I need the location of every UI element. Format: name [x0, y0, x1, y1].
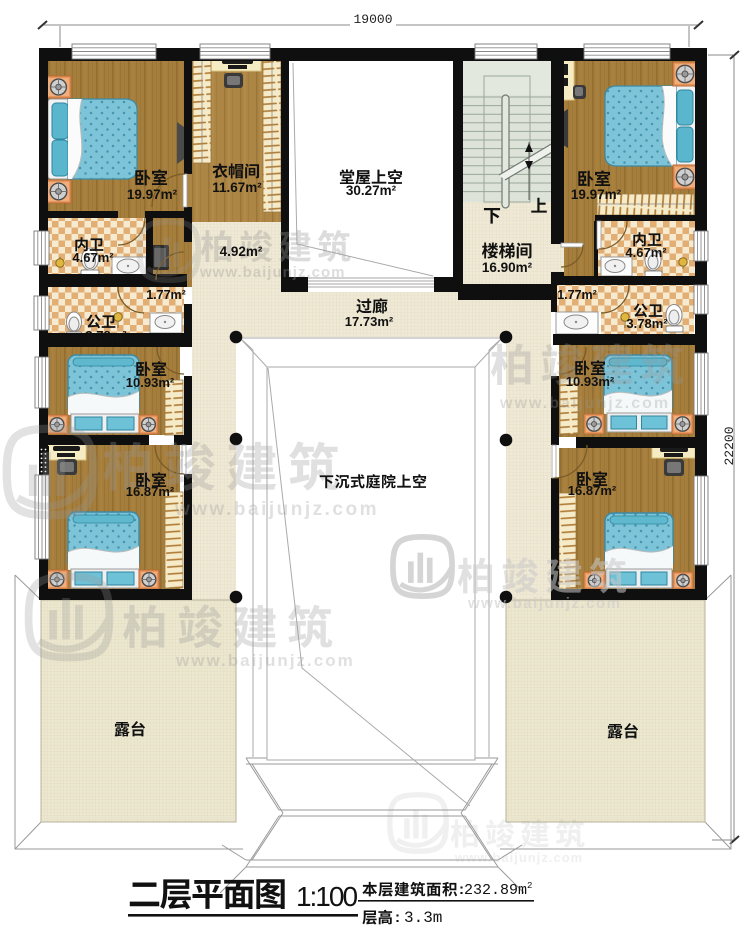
svg-text:232.89m: 232.89m	[464, 882, 527, 899]
svg-text:3.3m: 3.3m	[404, 909, 442, 927]
svg-text:17.73m²: 17.73m²	[345, 314, 394, 329]
svg-text:www.baijunjz.com: www.baijunjz.com	[499, 395, 670, 412]
svg-text:4.67m²: 4.67m²	[625, 245, 667, 260]
svg-text:1.77m²: 1.77m²	[146, 288, 186, 302]
svg-text:3.78m²: 3.78m²	[85, 328, 127, 343]
svg-text:19000: 19000	[353, 12, 392, 27]
svg-text:4.92m²: 4.92m²	[220, 244, 263, 259]
svg-text:www.baijunjz.com: www.baijunjz.com	[467, 595, 621, 612]
svg-text:10.93m²: 10.93m²	[126, 375, 175, 390]
svg-text:16.87m²: 16.87m²	[126, 484, 175, 499]
svg-text:10.93m²: 10.93m²	[566, 374, 615, 389]
svg-text:www.baijunjz.com: www.baijunjz.com	[199, 264, 345, 281]
svg-text:2: 2	[527, 881, 532, 891]
svg-text:19.97m²: 19.97m²	[571, 187, 622, 202]
svg-text:3.78m²: 3.78m²	[626, 316, 668, 331]
svg-text:22200: 22200	[722, 426, 737, 465]
svg-text:1:100: 1:100	[296, 881, 357, 912]
svg-text:11.67m²: 11.67m²	[212, 180, 262, 195]
svg-text:30.27m²: 30.27m²	[346, 183, 397, 198]
svg-text::: :	[395, 909, 400, 926]
svg-text:16.90m²: 16.90m²	[482, 260, 533, 275]
svg-text:19.97m²: 19.97m²	[127, 187, 178, 202]
svg-text:www.baijunjz.com: www.baijunjz.com	[175, 651, 355, 670]
svg-text:www.baijunjz.com: www.baijunjz.com	[174, 499, 379, 520]
svg-text:16.87m²: 16.87m²	[568, 483, 617, 498]
svg-text:1.77m²: 1.77m²	[557, 288, 597, 302]
svg-text:www.baijunjz.com: www.baijunjz.com	[454, 850, 583, 865]
svg-text:4.67m²: 4.67m²	[72, 250, 114, 265]
